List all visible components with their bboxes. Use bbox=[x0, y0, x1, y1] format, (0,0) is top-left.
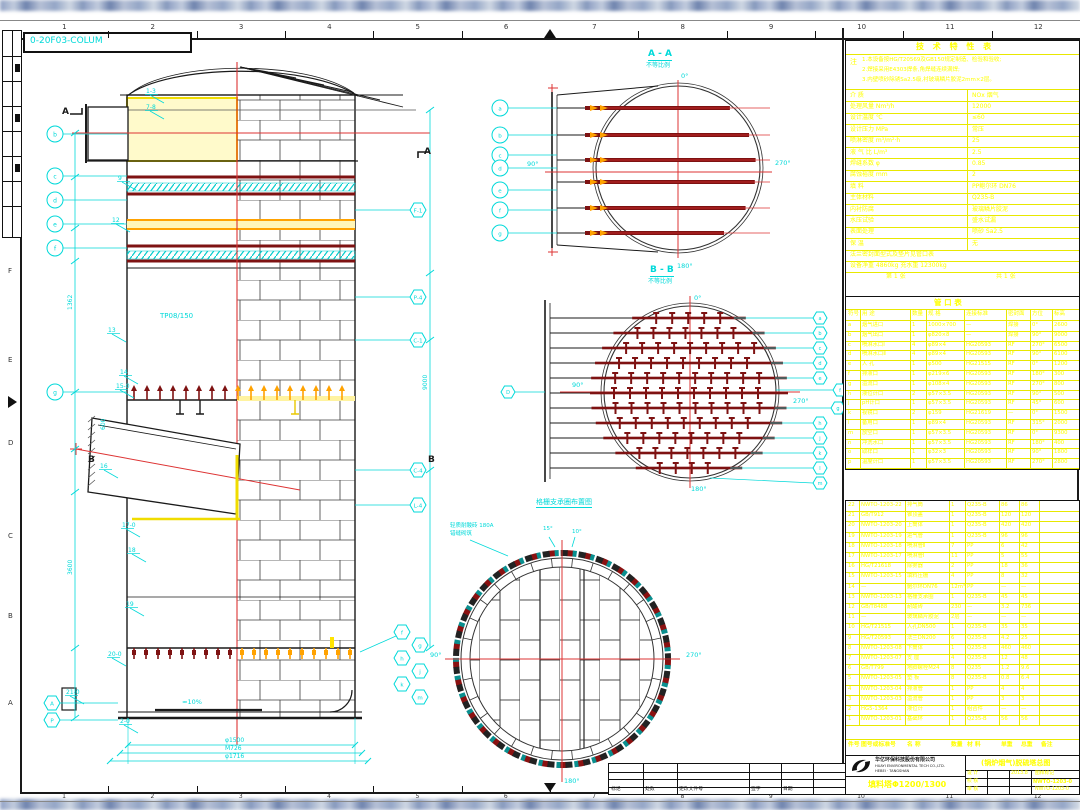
drawing-canvas: 0-20F03-COLUM 1362360060090001-37-891213… bbox=[0, 0, 1080, 810]
svg-text:A: A bbox=[50, 702, 54, 708]
top-banner bbox=[0, 0, 1080, 11]
section-b-flag-right: B bbox=[428, 456, 435, 465]
section-a-flag-right: A bbox=[424, 148, 431, 157]
svg-text:d: d bbox=[498, 167, 502, 173]
svg-text:m: m bbox=[818, 481, 823, 487]
plan-angle-t2: 10° bbox=[572, 530, 582, 536]
tech-table-box: 技 术 特 性 表注1.本设备按HG/T20569及GB150规定制造、检验和验… bbox=[845, 40, 1080, 298]
svg-text:16: 16 bbox=[100, 463, 108, 470]
svg-text:e: e bbox=[818, 376, 821, 382]
svg-text:20-0: 20-0 bbox=[108, 651, 122, 658]
svg-text:h: h bbox=[818, 421, 821, 427]
svg-text:21-0: 21-0 bbox=[66, 689, 80, 696]
svg-text:c: c bbox=[53, 174, 56, 181]
svg-text:e: e bbox=[53, 222, 57, 229]
svg-text:l: l bbox=[819, 466, 820, 472]
elevation-mid-label: TP08/150 bbox=[160, 313, 193, 320]
aa-angle-top: 0° bbox=[681, 73, 688, 80]
svg-text:600: 600 bbox=[100, 418, 107, 430]
svg-text:2-0: 2-0 bbox=[120, 718, 130, 725]
section-a-flag-left: A bbox=[62, 108, 69, 117]
svg-text:L-4: L-4 bbox=[414, 504, 423, 510]
plan-note-1: 轻质耐酸砖 180A bbox=[450, 524, 494, 530]
svg-text:18: 18 bbox=[128, 547, 136, 554]
ruler-bottom-line bbox=[0, 801, 1080, 802]
title-block-box: 华亿环保科技股份有限公司HUAYI ENVIRONMENTAL TECH CO.… bbox=[845, 755, 1080, 795]
svg-text:17-0: 17-0 bbox=[122, 522, 136, 529]
section-aa-title: A - A bbox=[648, 50, 672, 61]
plan-angle-right: 270° bbox=[686, 652, 702, 659]
svg-text:m: m bbox=[417, 696, 422, 702]
svg-text:c: c bbox=[498, 154, 501, 160]
svg-text:9000: 9000 bbox=[422, 375, 429, 390]
bb-angle-right: 270° bbox=[793, 398, 809, 405]
bb-angle-left: 90° bbox=[572, 382, 584, 389]
dim-bottom-1: φ1500 bbox=[225, 738, 244, 744]
aa-angle-right: 270° bbox=[775, 160, 791, 167]
svg-text:1-3: 1-3 bbox=[146, 88, 156, 95]
svg-text:C-4: C-4 bbox=[413, 469, 423, 475]
svg-text:g: g bbox=[836, 406, 839, 412]
svg-text:1362: 1362 bbox=[67, 295, 74, 310]
svg-text:12: 12 bbox=[112, 217, 120, 224]
section-aa-subtitle: 不等比例 bbox=[646, 63, 670, 69]
svg-text:3600: 3600 bbox=[67, 560, 74, 575]
svg-text:F-1: F-1 bbox=[414, 209, 423, 215]
bb-angle-top: 0° bbox=[694, 295, 701, 302]
revision-box: 标记处数更改文件号签字日期 bbox=[608, 763, 847, 795]
svg-text:g: g bbox=[53, 390, 57, 397]
plan-angle-t1: 15° bbox=[543, 527, 553, 533]
svg-text:g: g bbox=[418, 644, 422, 650]
aa-angle-left: 90° bbox=[527, 161, 539, 168]
svg-text:f: f bbox=[839, 388, 841, 394]
svg-text:D: D bbox=[506, 390, 510, 396]
svg-text:a: a bbox=[498, 107, 501, 113]
svg-text:b: b bbox=[498, 134, 502, 140]
plan-note-2: 错缝砌筑 bbox=[450, 532, 472, 538]
slope-note: ≈10% bbox=[182, 699, 202, 706]
svg-text:b: b bbox=[53, 132, 57, 139]
svg-text:j: j bbox=[818, 436, 820, 442]
ruler-top-line bbox=[0, 20, 1080, 21]
svg-text:g: g bbox=[498, 232, 502, 238]
dim-bottom-3: φ1716 bbox=[225, 754, 244, 760]
svg-text:15-0: 15-0 bbox=[116, 383, 130, 390]
center-mark-left bbox=[8, 396, 17, 408]
svg-text:b: b bbox=[818, 331, 821, 337]
svg-text:a: a bbox=[818, 316, 821, 322]
svg-text:7-8: 7-8 bbox=[146, 104, 156, 111]
svg-text:13: 13 bbox=[108, 327, 116, 334]
svg-text:d: d bbox=[818, 361, 821, 367]
svg-text:h: h bbox=[400, 657, 404, 663]
svg-text:C-1: C-1 bbox=[413, 339, 422, 345]
svg-text:19: 19 bbox=[126, 601, 134, 608]
svg-text:d: d bbox=[53, 198, 57, 205]
section-b-flag-left: B bbox=[88, 456, 95, 465]
svg-text:c: c bbox=[819, 346, 822, 352]
left-title-strip bbox=[2, 30, 22, 238]
company-logo bbox=[849, 758, 873, 774]
svg-text:14: 14 bbox=[120, 369, 128, 376]
svg-text:P-4: P-4 bbox=[414, 296, 423, 302]
svg-text:k: k bbox=[819, 451, 822, 457]
aa-angle-bottom: 180° bbox=[677, 263, 693, 270]
section-bb-subtitle: 不等比例 bbox=[648, 279, 672, 285]
nozzle-table-box: 管 口 表符号用 途数量规 格连接标准密封面方位标高a烟气进口11000×700… bbox=[845, 296, 1080, 470]
dim-bottom-2: M726 bbox=[225, 746, 242, 752]
section-bb-title: B - B bbox=[650, 266, 674, 277]
bom-table-box: 22NWTO-1203-22排气筒1Q235-B868621GB/T912锥顶盖… bbox=[845, 500, 1080, 757]
bb-angle-bottom: 180° bbox=[691, 486, 707, 493]
plan-title: 格栅支承圈布置图 bbox=[536, 499, 592, 508]
main-drawing: 1362360060090001-37-8912131415-01617-018… bbox=[20, 38, 843, 793]
plan-angle-left: 90° bbox=[430, 652, 442, 659]
plan-angle-bottom: 180° bbox=[564, 778, 580, 785]
